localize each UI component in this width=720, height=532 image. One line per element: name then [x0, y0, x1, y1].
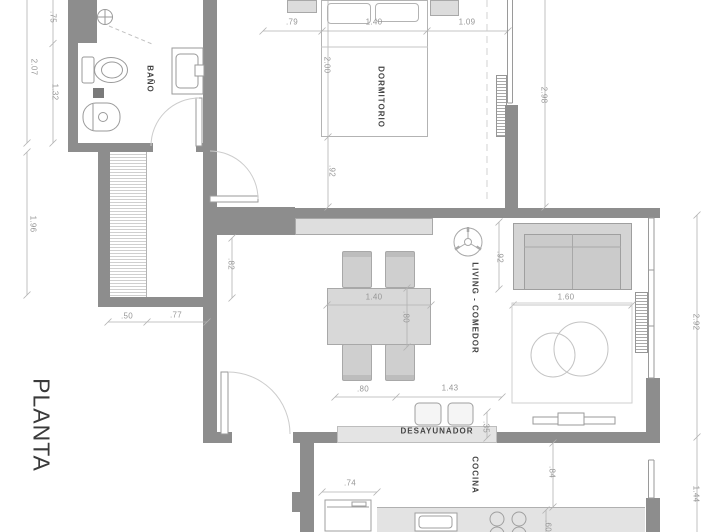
entry-door-swing: [228, 372, 290, 434]
kitchen-counter: [377, 507, 645, 532]
dim-label: .92: [328, 165, 337, 177]
dim-label: .92: [496, 251, 505, 263]
radiator: [635, 292, 648, 353]
dim-label: 1.09: [459, 18, 476, 27]
dim-label: 1.40: [366, 18, 383, 27]
nightstand: [287, 0, 317, 13]
wall: [203, 0, 217, 152]
wall: [68, 0, 78, 152]
dim-label: 1.60: [558, 293, 575, 302]
dim-label: .35: [482, 421, 491, 433]
bed-pillow: [327, 3, 371, 24]
ceiling-fan: [454, 227, 482, 256]
bathroom-fixtures: [82, 10, 204, 132]
dim-label: 2.92: [692, 314, 701, 331]
dim-label: .82: [227, 258, 236, 270]
dim-label: 2.07: [30, 59, 39, 76]
dim-label: 2.98: [540, 87, 549, 104]
dim-label: .79: [286, 18, 298, 27]
dim-label: 2.00: [323, 57, 332, 74]
room-label-breakfast-bar: DESAYUNADOR: [401, 427, 474, 436]
wall: [292, 492, 300, 512]
shower-screen: [109, 26, 152, 44]
fridge: [325, 500, 371, 531]
room-label-living-dining: LIVING - COMEDOR: [471, 262, 480, 354]
wall: [98, 297, 210, 307]
bidet: [83, 103, 120, 131]
dim-label: .80: [357, 385, 369, 394]
dim-label: .50: [121, 312, 133, 321]
room-label-bathroom: BAÑO: [146, 65, 155, 93]
bedroom-door-swing: [210, 151, 258, 199]
wall: [646, 498, 660, 532]
sink-basin: [176, 54, 198, 88]
dim-label: .84: [548, 466, 557, 478]
dim-label: 1.43: [442, 384, 459, 393]
wall: [646, 378, 660, 443]
floor-plan: PLANTA BAÑO DORMITORIO LIVING - COMEDOR …: [0, 0, 720, 532]
toilet-bowl: [95, 58, 128, 83]
rug: [512, 303, 632, 403]
wall: [98, 152, 110, 307]
bathroom-door-swing: [151, 98, 199, 146]
wall: [203, 207, 295, 235]
sofa-seat: [524, 234, 621, 290]
stool: [415, 403, 441, 425]
bathroom-cabinet: [93, 88, 104, 98]
room-label-kitchen: COCINA: [471, 456, 480, 494]
dim-label: .80: [402, 311, 411, 323]
dining-chair: [385, 344, 415, 381]
dim-label: 1.40: [366, 293, 383, 302]
dim-label: .60: [544, 520, 553, 532]
wall: [203, 152, 217, 207]
dim-label: 1.32: [51, 84, 60, 101]
plan-title: PLANTA: [28, 378, 55, 472]
dim-label: 1.44: [692, 486, 701, 503]
dim-label: .74: [344, 479, 356, 488]
rug-circle: [531, 333, 575, 377]
vanity: [172, 48, 203, 94]
bedroom-door-leaf: [210, 196, 258, 202]
toilet-tank: [82, 57, 94, 83]
wall: [295, 208, 660, 218]
shaft-hatch: [110, 152, 147, 297]
wall: [300, 443, 314, 532]
doors: [151, 98, 290, 434]
wall: [505, 105, 518, 208]
tv: [533, 417, 615, 424]
dining-chair: [385, 251, 415, 288]
dining-chair: [342, 251, 372, 288]
dining-chair: [342, 344, 372, 381]
dim-label: 1.96: [29, 216, 38, 233]
wall: [293, 432, 337, 443]
wall: [68, 143, 153, 152]
bathroom-door-leaf: [196, 98, 202, 146]
rug-circle: [554, 322, 608, 376]
dim-label: .75: [49, 11, 58, 23]
wall: [497, 432, 660, 443]
shower-head: [98, 10, 113, 25]
entry-door-leaf: [221, 372, 228, 434]
stool: [448, 403, 473, 425]
dim-label: .77: [170, 311, 182, 320]
wall: [203, 432, 232, 443]
wall: [203, 235, 217, 432]
room-label-bedroom: DORMITORIO: [377, 66, 386, 128]
tv-stand: [558, 413, 584, 425]
nightstand: [430, 0, 459, 16]
sideboard: [295, 218, 433, 235]
